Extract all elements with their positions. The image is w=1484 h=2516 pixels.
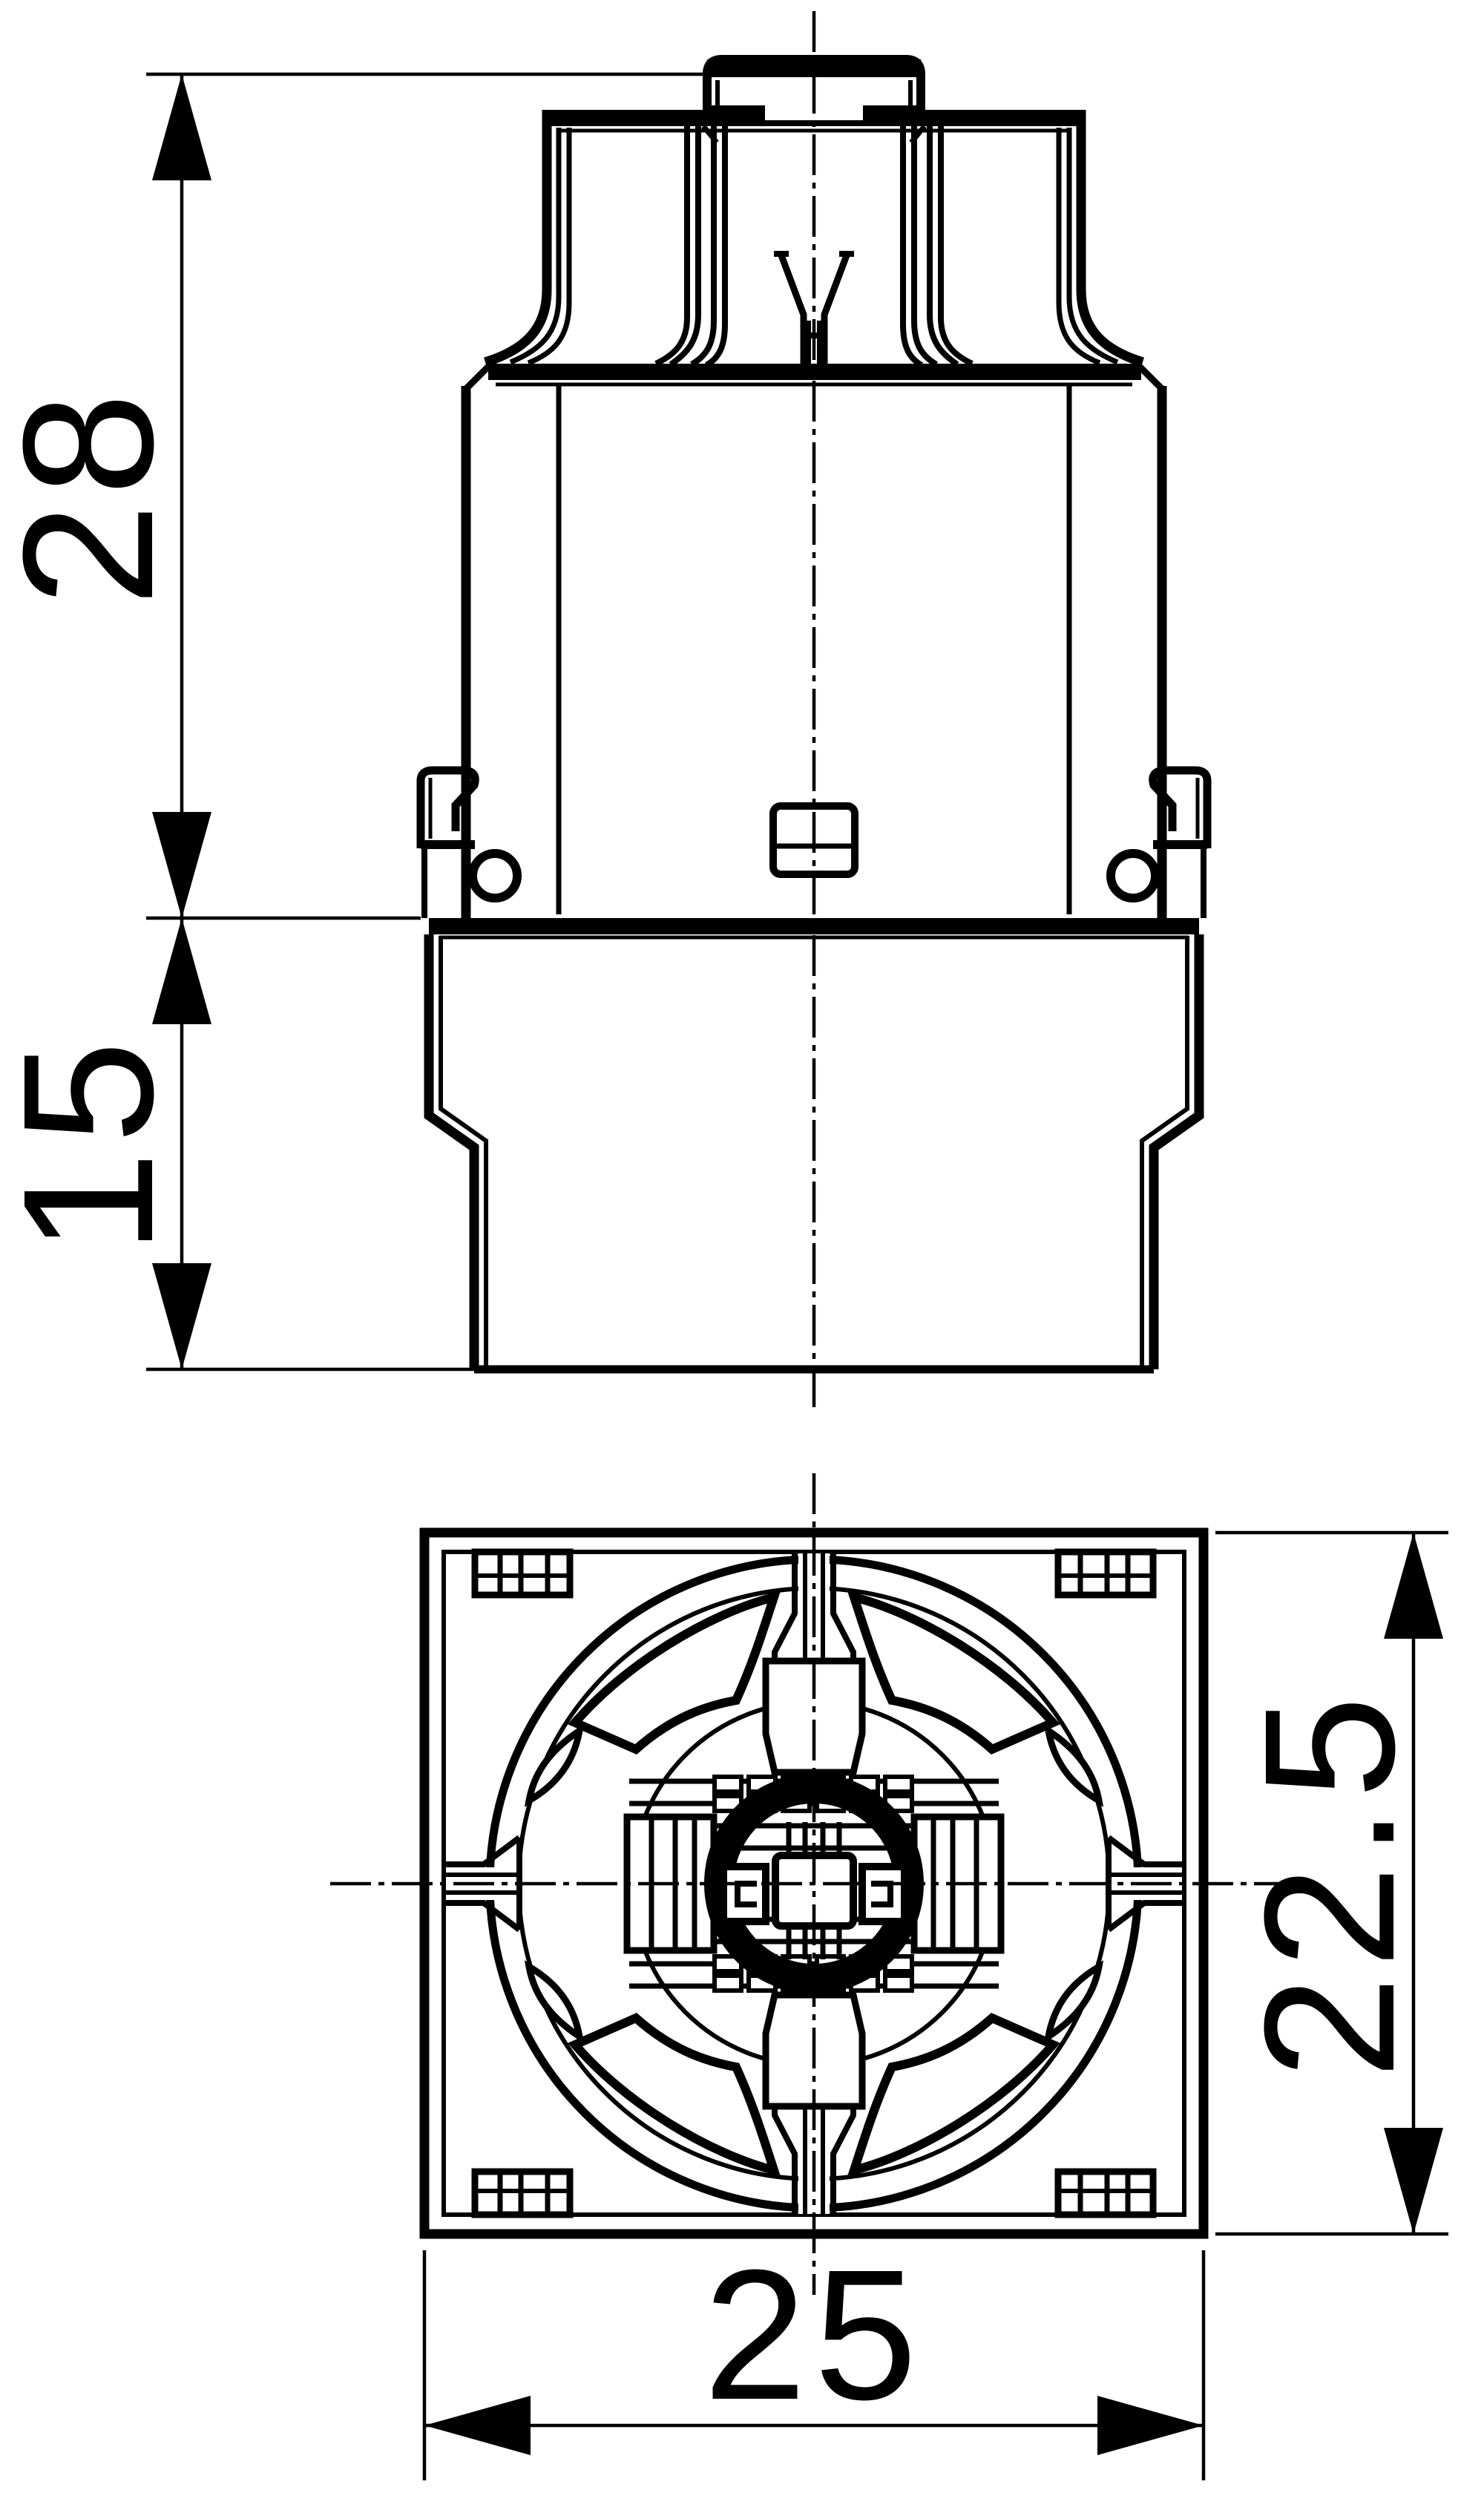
corner-tab-bl [475, 2172, 570, 2215]
corner-tab-tl [475, 1552, 570, 1595]
dimension-arrow [1384, 2128, 1443, 2234]
front-view: 28 15 [0, 11, 1207, 1410]
drawing-sheet: 28 15 [0, 0, 1484, 2516]
side-dimension: 22.5 [1215, 1533, 1448, 2234]
dimension-label-28: 28 [0, 385, 191, 606]
front-dimensions: 28 15 [0, 74, 707, 1369]
dimension-label-15: 15 [0, 1033, 191, 1254]
dimension-arrow [1097, 2396, 1204, 2455]
vane-group-se [854, 1967, 1099, 2170]
corner-tab-br [1058, 2172, 1153, 2215]
vane-group-sw [529, 1967, 774, 2170]
cap-ear-right [863, 105, 919, 120]
technical-drawing: 28 15 [0, 0, 1484, 2516]
vane-group-ne [854, 1597, 1099, 1801]
dimension-arrow [152, 812, 211, 918]
corner-tab-tr [1058, 1552, 1153, 1595]
dimension-arrow [424, 2396, 531, 2455]
dimension-arrow [152, 74, 211, 180]
dimension-arrow [152, 918, 211, 1024]
dimension-arrow [1384, 1533, 1443, 1639]
dimension-label-25: 25 [703, 2231, 925, 2438]
bottom-view: 22.5 25 [330, 1473, 1448, 2480]
vane-group-nw [529, 1597, 774, 1801]
cap-ear-left [709, 105, 765, 120]
dimension-label-22-5: 22.5 [1226, 1688, 1433, 2080]
dimension-arrow [152, 1263, 211, 1369]
base-dimension: 25 [424, 2231, 1204, 2480]
